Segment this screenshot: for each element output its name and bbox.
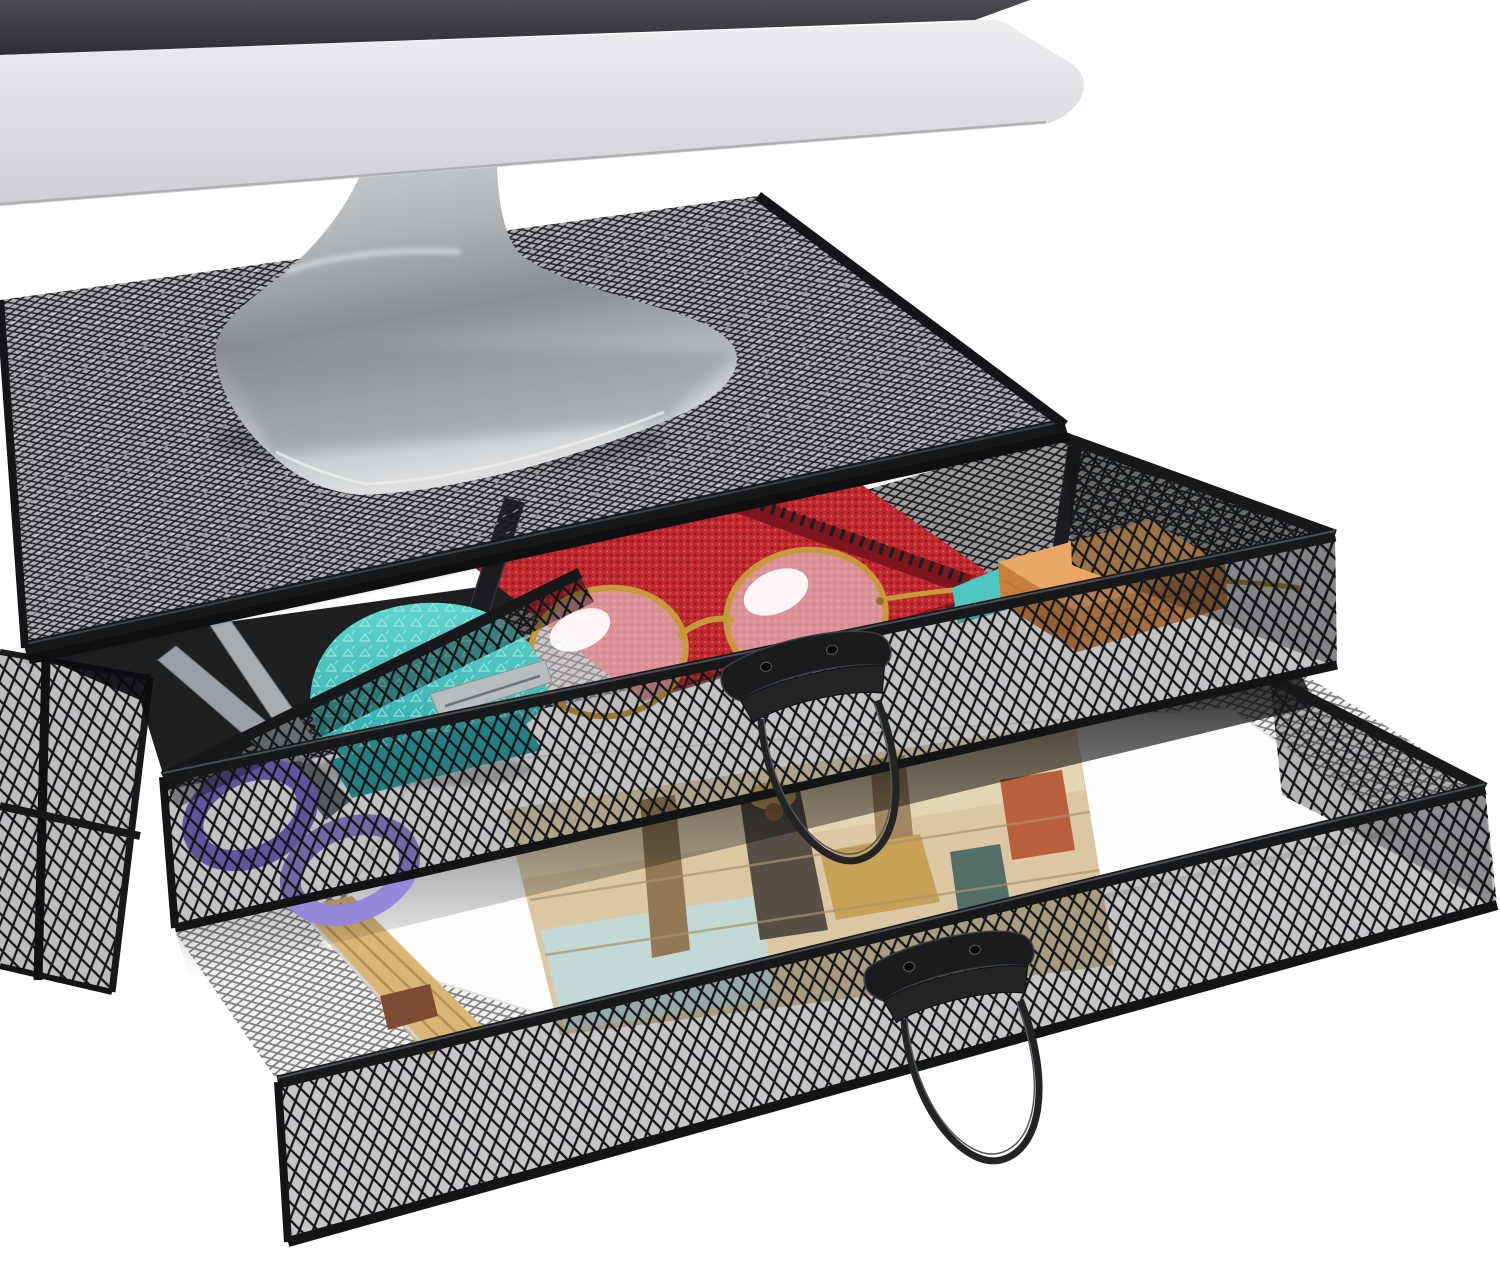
product-photo — [0, 0, 1500, 1269]
eyeglasses-hinge — [876, 597, 884, 605]
product-photo-stage — [0, 0, 1500, 1269]
